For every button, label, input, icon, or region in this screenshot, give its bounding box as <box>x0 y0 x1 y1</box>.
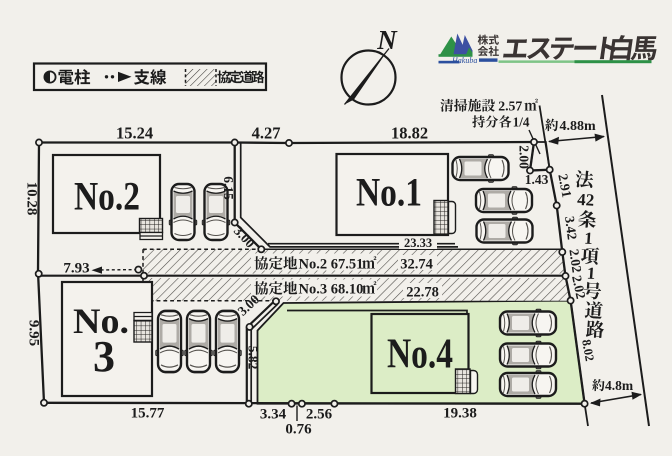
svg-text:N: N <box>376 25 398 55</box>
svg-text:No.2: No.2 <box>74 174 140 219</box>
svg-text:3.34: 3.34 <box>260 407 287 423</box>
svg-text:4.8m: 4.8m <box>605 378 634 393</box>
svg-text:19.38: 19.38 <box>443 406 477 422</box>
svg-text:0.76: 0.76 <box>285 422 312 438</box>
svg-text:3: 3 <box>93 332 115 381</box>
svg-text:15.77: 15.77 <box>131 406 165 422</box>
svg-text:42: 42 <box>577 190 595 210</box>
svg-text:4.88m: 4.88m <box>560 119 597 134</box>
svg-text:9.95: 9.95 <box>26 320 42 346</box>
svg-text:15.24: 15.24 <box>116 124 153 143</box>
svg-text:No.3 68.10: No.3 68.10 <box>299 282 364 298</box>
svg-text:10.28: 10.28 <box>24 182 40 216</box>
svg-text:3.42: 3.42 <box>562 215 580 241</box>
svg-text:No.2 67.51: No.2 67.51 <box>299 257 364 273</box>
svg-text:22.78: 22.78 <box>406 285 439 301</box>
svg-text:1/4: 1/4 <box>513 115 530 130</box>
svg-text:1: 1 <box>584 229 594 249</box>
svg-text:32.74: 32.74 <box>400 257 433 273</box>
svg-text:1.43: 1.43 <box>525 172 549 187</box>
svg-text:7.93: 7.93 <box>63 261 89 277</box>
svg-text:No.4: No.4 <box>387 332 453 378</box>
svg-text:6.15: 6.15 <box>221 176 236 200</box>
svg-text:2.57: 2.57 <box>498 99 522 114</box>
svg-text:2.56: 2.56 <box>306 407 333 423</box>
svg-text:23.33: 23.33 <box>404 236 432 250</box>
svg-text:4.27: 4.27 <box>252 124 281 143</box>
svg-text:1: 1 <box>586 264 596 284</box>
svg-text:No.1: No.1 <box>356 170 422 215</box>
svg-text:Hakuba: Hakuba <box>451 56 477 65</box>
svg-text:5.82: 5.82 <box>246 346 261 370</box>
svg-text:2.00: 2.00 <box>517 145 532 169</box>
svg-text:18.82: 18.82 <box>391 124 428 143</box>
